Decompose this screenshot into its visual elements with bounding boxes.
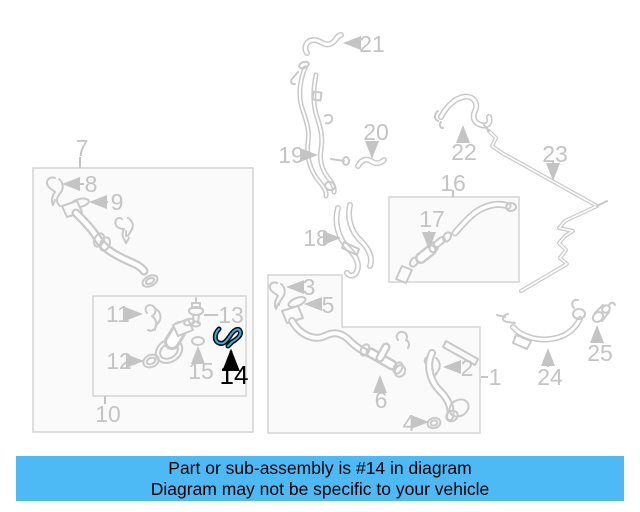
part-tube-24: [497, 300, 585, 349]
part-label-9[interactable]: 9: [111, 189, 124, 215]
part-plug-25: [591, 303, 615, 324]
part-label-11[interactable]: 11: [106, 301, 130, 327]
part-label-6[interactable]: 6: [375, 387, 388, 413]
part-hose-22: [435, 97, 490, 128]
part-label-14[interactable]: 14: [220, 360, 249, 390]
part-label-8[interactable]: 8: [85, 171, 98, 197]
part-label-20[interactable]: 20: [363, 119, 389, 145]
part-label-15[interactable]: 15: [188, 358, 214, 384]
part-hose-18: [336, 205, 371, 275]
part-label-1[interactable]: 1: [489, 364, 502, 390]
part-hose-20: [358, 160, 384, 166]
part-label-7[interactable]: 7: [76, 135, 89, 161]
part-label-24[interactable]: 24: [537, 364, 563, 390]
part-label-4[interactable]: 4: [403, 410, 416, 436]
part-label-21[interactable]: 21: [359, 31, 385, 57]
part-label-25[interactable]: 25: [587, 340, 613, 366]
part-label-23[interactable]: 23: [542, 141, 568, 167]
part-label-17[interactable]: 17: [419, 206, 445, 232]
highlight-banner: Part or sub-assembly is #14 in diagram D…: [16, 456, 624, 501]
part-label-3[interactable]: 3: [303, 274, 316, 300]
banner-line-2: Diagram may not be specific to your vehi…: [151, 479, 489, 500]
part-label-19[interactable]: 19: [278, 142, 304, 168]
part-label-2[interactable]: 2: [461, 355, 474, 381]
part-hose-21: [305, 35, 341, 53]
part-label-13[interactable]: 13: [218, 302, 244, 328]
part-label-18[interactable]: 18: [303, 225, 329, 251]
part-label-10[interactable]: 10: [95, 401, 121, 427]
parts-diagram: 7 8 9 10 11 12 13 15 16 17 18 19 20 21 2…: [0, 0, 640, 512]
part-label-5[interactable]: 5: [322, 292, 335, 318]
part-label-16[interactable]: 16: [440, 170, 466, 196]
part-label-12[interactable]: 12: [106, 348, 132, 374]
part-pipe-19: [291, 60, 349, 196]
part-label-22[interactable]: 22: [451, 139, 477, 165]
banner-line-1: Part or sub-assembly is #14 in diagram: [168, 458, 471, 479]
